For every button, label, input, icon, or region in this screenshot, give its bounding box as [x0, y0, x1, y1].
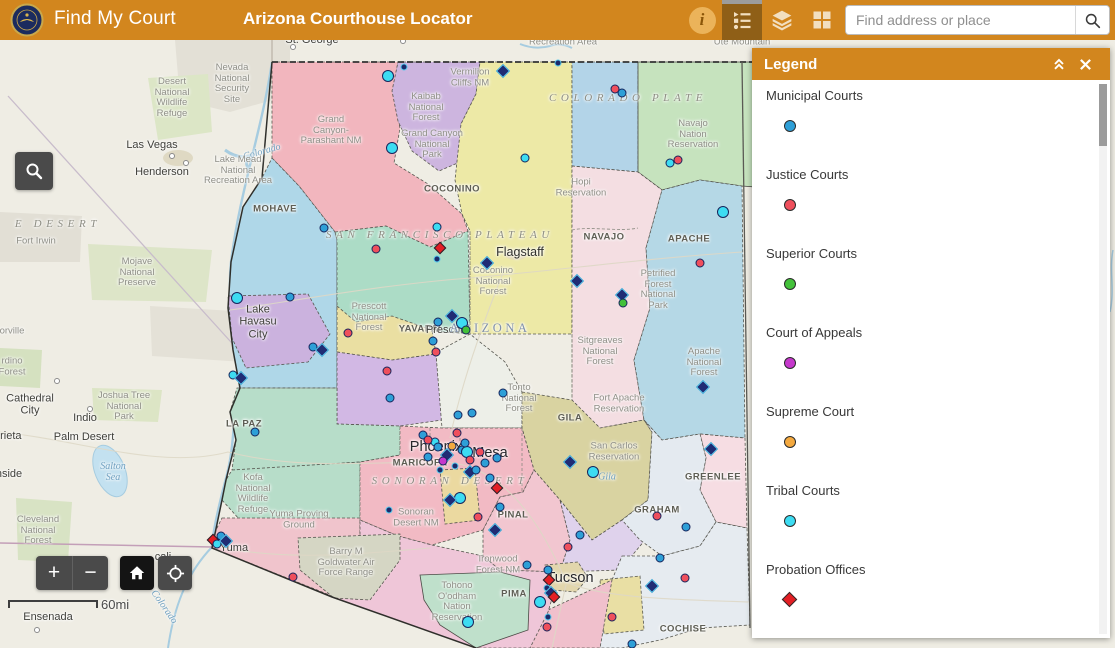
justice-court-marker[interactable]: [476, 448, 485, 457]
legend-item: Probation Offices: [766, 562, 1110, 638]
municipal-court-marker[interactable]: [486, 474, 495, 483]
justice-court-marker[interactable]: [653, 512, 662, 521]
legend-symbol-circle: [784, 278, 796, 290]
search-submit-button[interactable]: [1075, 6, 1109, 34]
app-window: St. GeorgeRecreation AreaUte MountainNev…: [0, 0, 1115, 648]
zoom-in-button[interactable]: +: [36, 556, 72, 590]
legend-item: Supreme Court: [766, 404, 1110, 483]
municipal-court-marker[interactable]: [493, 454, 502, 463]
legend-item-label: Justice Courts: [766, 167, 1110, 182]
tribal-court-marker[interactable]: [382, 70, 394, 82]
superior-court-marker[interactable]: [619, 299, 628, 308]
app-brand: Find My Court: [54, 8, 176, 30]
municipal-court-marker[interactable]: [424, 453, 433, 462]
legend-symbol-circle: [784, 515, 796, 527]
court-point-marker[interactable]: [555, 60, 562, 67]
court-point-marker[interactable]: [545, 614, 552, 621]
municipal-court-marker[interactable]: [628, 640, 637, 648]
search-icon: [1084, 12, 1101, 29]
legend-item-label: Supreme Court: [766, 404, 1110, 419]
scrollbar-thumb[interactable]: [1099, 84, 1107, 146]
legend-symbol-circle: [784, 199, 796, 211]
legend-scrollbar[interactable]: [1099, 84, 1107, 634]
double-chevron-up-icon: [1051, 56, 1067, 72]
tribal-court-marker[interactable]: [521, 154, 530, 163]
info-button[interactable]: i: [682, 0, 722, 40]
close-button[interactable]: [1072, 58, 1098, 71]
legend-title: Legend: [764, 56, 1046, 73]
municipal-court-marker[interactable]: [523, 561, 532, 570]
legend-item: Superior Courts: [766, 246, 1110, 325]
legend-symbol-diamond: [782, 592, 798, 608]
legend-symbol-circle: [784, 357, 796, 369]
legend-symbol-circle: [784, 436, 796, 448]
municipal-court-marker[interactable]: [496, 503, 505, 512]
justice-court-marker[interactable]: [543, 623, 552, 632]
municipal-court-marker[interactable]: [454, 411, 463, 420]
municipal-court-marker[interactable]: [429, 337, 438, 346]
legend-item-label: Superior Courts: [766, 246, 1110, 261]
geocoder-search: [845, 5, 1110, 35]
municipal-court-marker[interactable]: [434, 443, 443, 452]
court-point-marker[interactable]: [437, 467, 444, 474]
basemap-gallery-button[interactable]: [802, 0, 842, 40]
legend-item: Municipal Courts: [766, 88, 1110, 167]
supreme-court-marker[interactable]: [448, 442, 457, 451]
collapse-button[interactable]: [1046, 56, 1072, 72]
layers-icon: [771, 9, 793, 31]
scale-bar: [8, 600, 98, 608]
legend-list-icon: [732, 10, 752, 30]
municipal-court-marker[interactable]: [251, 428, 260, 437]
court-seal-logo: [10, 3, 44, 37]
tribal-court-marker[interactable]: [433, 223, 442, 232]
zoom-control: + −: [36, 556, 108, 590]
tribal-court-marker[interactable]: [717, 206, 729, 218]
municipal-court-marker[interactable]: [481, 459, 490, 468]
court-point-marker[interactable]: [401, 64, 408, 71]
search-input[interactable]: [846, 6, 1075, 34]
legend-item-label: Municipal Courts: [766, 88, 1110, 103]
legend-item: Court of Appeals: [766, 325, 1110, 404]
justice-court-marker[interactable]: [289, 573, 298, 582]
municipal-court-marker[interactable]: [320, 224, 329, 233]
legend-symbol-circle: [784, 120, 796, 132]
municipal-court-marker[interactable]: [472, 466, 481, 475]
tribal-court-marker[interactable]: [534, 596, 546, 608]
justice-court-marker[interactable]: [674, 156, 683, 165]
municipal-court-marker[interactable]: [461, 439, 470, 448]
home-extent-button[interactable]: [120, 556, 154, 590]
superior-court-marker[interactable]: [462, 326, 471, 335]
justice-court-marker[interactable]: [681, 574, 690, 583]
map-search-tool-button[interactable]: [15, 152, 53, 190]
search-icon: [24, 161, 44, 181]
crosshair-icon: [166, 564, 185, 583]
info-icon: i: [689, 7, 716, 34]
tribal-court-marker[interactable]: [231, 292, 243, 304]
municipal-court-marker[interactable]: [656, 554, 665, 563]
legend-button[interactable]: [722, 0, 762, 40]
justice-court-marker[interactable]: [432, 348, 441, 357]
justice-court-marker[interactable]: [696, 259, 705, 268]
tribal-court-marker[interactable]: [462, 616, 474, 628]
municipal-court-marker[interactable]: [286, 293, 295, 302]
court-of-appeals-marker[interactable]: [439, 457, 448, 466]
court-point-marker[interactable]: [386, 507, 393, 514]
legend-item: Justice Courts: [766, 167, 1110, 246]
justice-court-marker[interactable]: [372, 245, 381, 254]
court-point-marker[interactable]: [452, 463, 459, 470]
app-header: Find My Court Arizona Courthouse Locator…: [0, 0, 1115, 40]
close-icon: [1079, 58, 1092, 71]
legend-item-label: Court of Appeals: [766, 325, 1110, 340]
legend-item-label: Tribal Courts: [766, 483, 1110, 498]
municipal-court-marker[interactable]: [618, 89, 627, 98]
legend-item: Tribal Courts: [766, 483, 1110, 562]
legend-panel-header: Legend: [752, 48, 1110, 80]
tribal-court-marker[interactable]: [386, 142, 398, 154]
tribal-court-marker[interactable]: [587, 466, 599, 478]
zoom-out-button[interactable]: −: [72, 556, 108, 590]
municipal-court-marker[interactable]: [386, 394, 395, 403]
my-location-button[interactable]: [158, 556, 192, 590]
justice-court-marker[interactable]: [344, 329, 353, 338]
page-title: Arizona Courthouse Locator: [243, 9, 473, 29]
grid-apps-icon: [812, 10, 832, 30]
justice-court-marker[interactable]: [564, 543, 573, 552]
municipal-court-marker[interactable]: [468, 409, 477, 418]
legend-item-label: Probation Offices: [766, 562, 1110, 577]
justice-court-marker[interactable]: [453, 429, 462, 438]
municipal-court-marker[interactable]: [499, 389, 508, 398]
justice-court-marker[interactable]: [383, 367, 392, 376]
municipal-court-marker[interactable]: [576, 531, 585, 540]
justice-court-marker[interactable]: [424, 436, 433, 445]
scale-bar-label: 60mi: [101, 597, 129, 612]
layers-button[interactable]: [762, 0, 802, 40]
seal-icon: [10, 3, 44, 37]
legend-panel: Legend Municipal CourtsJustice CourtsSup…: [752, 48, 1110, 638]
legend-body: Municipal CourtsJustice CourtsSuperior C…: [752, 80, 1110, 638]
home-icon: [128, 564, 146, 582]
justice-court-marker[interactable]: [466, 456, 475, 465]
justice-court-marker[interactable]: [474, 513, 483, 522]
municipal-court-marker[interactable]: [682, 523, 691, 532]
municipal-court-marker[interactable]: [434, 318, 443, 327]
justice-court-marker[interactable]: [608, 613, 617, 622]
court-point-marker[interactable]: [434, 256, 441, 263]
